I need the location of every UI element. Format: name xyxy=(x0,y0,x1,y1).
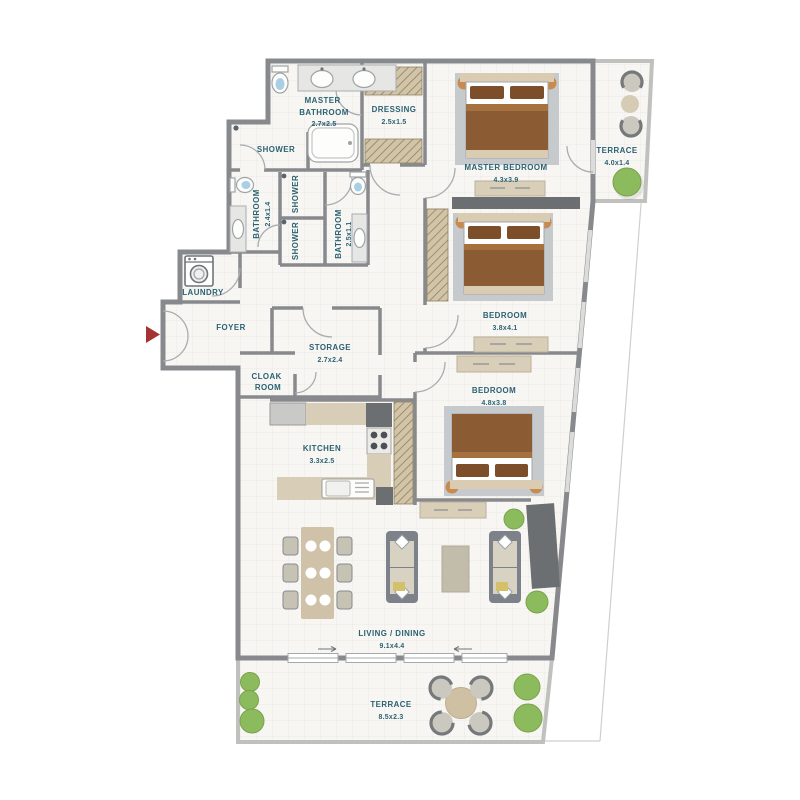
room-label-bedroom-2: BEDROOM xyxy=(483,311,527,320)
wall-slab xyxy=(452,197,580,209)
room-dim-living-dining: 9.1x4.4 xyxy=(379,643,404,650)
plant xyxy=(504,509,524,529)
fridge xyxy=(270,403,306,425)
pillow xyxy=(456,464,489,477)
sink xyxy=(354,229,365,248)
sink xyxy=(311,71,333,88)
toilet-seat xyxy=(276,78,285,90)
room-label-bedroom-3: BEDROOM xyxy=(472,386,516,395)
corner-unit xyxy=(366,403,392,427)
room-label-kitchen: KITCHEN xyxy=(303,444,341,453)
wardrobe xyxy=(427,209,448,301)
room-dim-terrace-lower: 8.5x2.3 xyxy=(378,714,403,721)
faucet xyxy=(348,141,352,145)
dresser xyxy=(457,356,531,372)
counter xyxy=(367,454,391,478)
headboard xyxy=(458,213,550,222)
room-label-laundry: LAUNDRY xyxy=(182,288,224,297)
sofa xyxy=(386,531,418,603)
room-dim-storage: 2.7x2.4 xyxy=(317,357,342,364)
stove xyxy=(367,428,391,454)
dining-chair xyxy=(337,591,352,609)
headboard xyxy=(450,480,542,489)
pillow xyxy=(495,464,528,477)
wardrobe xyxy=(394,402,413,504)
room-label-bathroom-left: BATHROOM xyxy=(252,189,261,238)
master-bed xyxy=(455,73,559,165)
toilet-tank xyxy=(350,172,366,177)
sideboard xyxy=(420,502,486,518)
pillow xyxy=(470,86,504,99)
room-label-master-bedroom: MASTER BEDROOM xyxy=(464,163,547,172)
sink xyxy=(233,220,244,239)
room-dim-kitchen: 3.3x2.5 xyxy=(309,458,334,465)
counter xyxy=(306,403,366,425)
room-dim-bathroom-left: 2.4x1.4 xyxy=(265,201,272,226)
room-label-shower-top: SHOWER xyxy=(257,145,295,154)
duvet xyxy=(464,244,544,286)
room-label-shower-2: SHOWER xyxy=(291,222,300,260)
plant xyxy=(514,674,540,700)
plant xyxy=(526,591,548,613)
faucet xyxy=(362,67,365,70)
dining-chair xyxy=(283,537,298,555)
pillow xyxy=(507,226,540,239)
toilet-seat xyxy=(354,183,362,192)
room-label-living-dining: LIVING / DINING xyxy=(358,629,425,638)
toilet-tank xyxy=(272,66,288,72)
dining-chair xyxy=(283,591,298,609)
shower-head-icon xyxy=(233,125,238,130)
room-dim-dressing: 2.5x1.5 xyxy=(381,119,406,126)
room-dim-bathroom-right: 2.5x1.1 xyxy=(346,221,353,246)
plant xyxy=(240,709,264,733)
headboard xyxy=(460,73,554,82)
bed-3 xyxy=(444,406,544,496)
room-label-terrace-upper: TERRACE xyxy=(596,146,637,155)
tv-wall xyxy=(526,503,560,589)
pillow xyxy=(510,86,544,99)
duvet xyxy=(452,414,532,458)
wardrobe xyxy=(365,139,422,163)
room-label-dressing: DRESSING xyxy=(372,105,417,114)
room-dim-terrace-upper: 4.0x1.4 xyxy=(604,160,629,167)
dining-chair xyxy=(337,537,352,555)
plant xyxy=(240,691,259,710)
room-label-foyer: FOYER xyxy=(216,323,245,332)
pillow xyxy=(468,226,501,239)
floor-plan-svg: MASTER BATHROOM 2.7x2.5 DRESSING 2.5x1.5… xyxy=(0,0,800,800)
plant xyxy=(241,673,260,692)
dining-chair xyxy=(337,564,352,582)
bed-2 xyxy=(453,213,553,301)
pillow-yellow xyxy=(393,582,405,591)
corner-unit xyxy=(376,487,393,505)
sink xyxy=(353,71,375,88)
toilet-tank xyxy=(230,178,235,192)
entry-arrow-icon xyxy=(146,326,160,343)
terrace-side-table xyxy=(621,95,639,113)
plant xyxy=(613,168,641,196)
room-dim-bedroom-3: 4.8x3.8 xyxy=(481,400,506,407)
room-label-shower-1: SHOWER xyxy=(291,175,300,213)
room-dim-master-bedroom: 4.3x3.9 xyxy=(493,177,518,184)
coffee-table xyxy=(442,546,469,592)
sofa xyxy=(489,531,521,603)
terrace-upper xyxy=(593,61,652,201)
faucet xyxy=(320,67,323,70)
dresser xyxy=(474,337,548,352)
pillow-yellow xyxy=(496,582,508,591)
room-label-bathroom-right: BATHROOM xyxy=(334,209,343,258)
plant xyxy=(514,704,542,732)
laundry-fixtures xyxy=(185,256,213,286)
toilet-seat xyxy=(242,181,251,189)
room-dim-bedroom-2: 3.8x4.1 xyxy=(492,325,517,332)
room-label-storage: STORAGE xyxy=(309,343,351,352)
room-dim-master-bathroom: 2.7x2.5 xyxy=(311,121,336,128)
floor-plan-canvas: MASTER BATHROOM 2.7x2.5 DRESSING 2.5x1.5… xyxy=(0,0,800,800)
dining-chair xyxy=(283,564,298,582)
room-label-terrace-lower: TERRACE xyxy=(370,700,411,709)
shower-head-icon xyxy=(282,220,287,225)
shower-head-icon xyxy=(282,174,287,179)
